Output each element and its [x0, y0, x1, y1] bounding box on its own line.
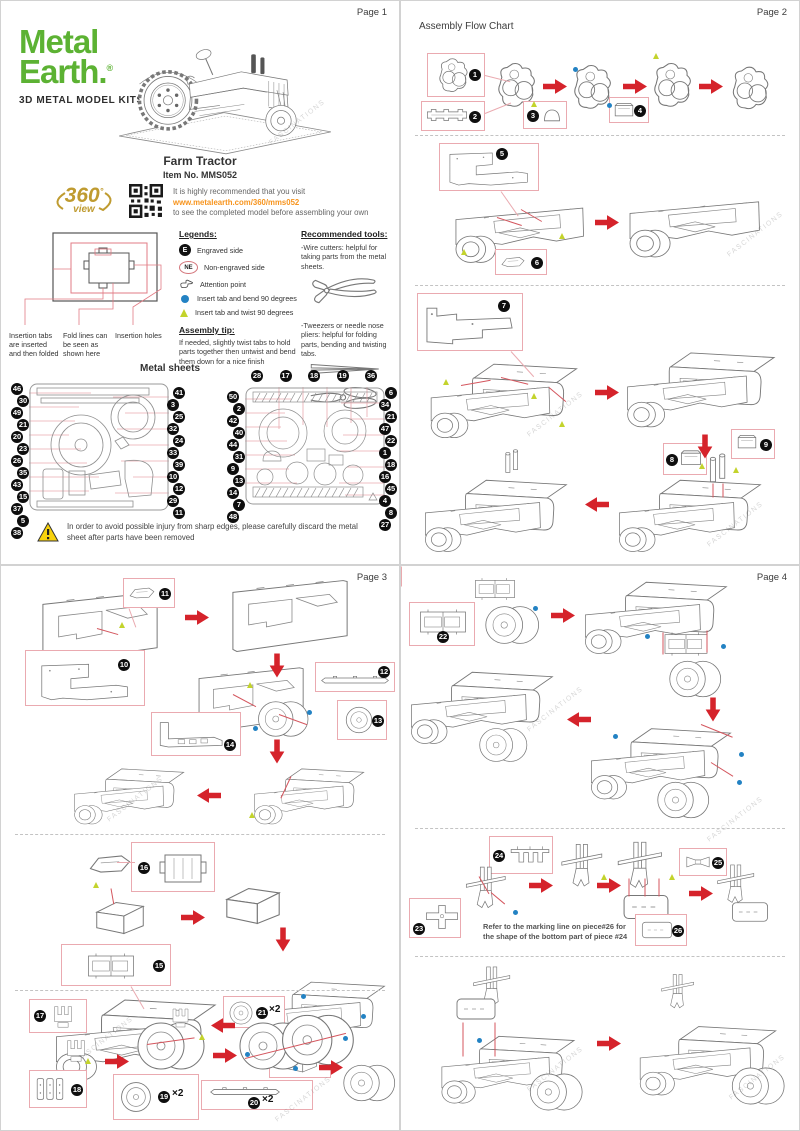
- step-badge-19: 19: [158, 1091, 170, 1103]
- assembly-tip-text: If needed, slightly twist tabs to hold p…: [179, 338, 297, 366]
- twist-marker: [559, 233, 565, 239]
- legend-bend-label: Insert tab and bend 90 degrees: [197, 294, 297, 303]
- arrow-left: [567, 712, 591, 727]
- part-box-3: 3: [523, 101, 567, 129]
- bend-marker: [253, 726, 258, 731]
- product-name: Farm Tractor: [1, 154, 399, 168]
- step-badge-23: 23: [413, 923, 425, 935]
- page-number-label: Page 3: [357, 572, 387, 583]
- bend-marker: [343, 1036, 348, 1041]
- assembly-14-result: [55, 762, 205, 828]
- part-11-wedge: [128, 584, 156, 602]
- part-box-12: 12: [315, 662, 395, 692]
- part-number-badge: 32: [167, 423, 179, 435]
- bend-marker: [573, 67, 578, 72]
- arrow-right: [551, 608, 575, 623]
- arrow-left: [585, 497, 609, 512]
- part-number-badge: 27: [379, 519, 391, 531]
- item-number: Item No. MMS052: [1, 170, 399, 180]
- part-16-seatback: [156, 848, 210, 888]
- part-number-badge: 28: [251, 370, 263, 382]
- assembly-step4: [649, 61, 695, 111]
- times-two: ×2: [172, 1088, 183, 1099]
- part-13-disc: [344, 705, 374, 735]
- page-number-label: Page 2: [757, 7, 787, 18]
- legend-non-engraved: NE Non-engraved side: [179, 261, 297, 274]
- part-number-badge: 36: [365, 370, 377, 382]
- steering-installed: [649, 972, 705, 1018]
- twist-marker: [249, 812, 255, 818]
- bend-marker: [361, 1014, 366, 1019]
- page-3: Page 3 11 10 12 13: [0, 565, 400, 1131]
- part-number-badge: 42: [227, 415, 239, 427]
- part-number-badge: 17: [280, 370, 292, 382]
- bend-marker: [293, 1066, 298, 1071]
- assembly-result-4: [421, 471, 573, 557]
- exhaust-pipes-installed: [503, 449, 521, 475]
- insert-line: [707, 631, 708, 653]
- step-badge-2: 2: [469, 111, 481, 123]
- part-number-badge: 40: [233, 427, 245, 439]
- bend-marker: [307, 710, 312, 715]
- arrow-down: [276, 928, 291, 952]
- arrow-right: [543, 79, 567, 94]
- row-divider: [415, 828, 785, 829]
- arrow-right: [595, 215, 619, 230]
- part-box-11: 11: [123, 578, 175, 608]
- twist-marker: [247, 682, 253, 688]
- seat-complete: [217, 882, 289, 930]
- step-badge-10: 10: [118, 659, 130, 671]
- twist-marker: [531, 101, 537, 107]
- twist-marker: [699, 463, 705, 469]
- part-number-badge: 43: [11, 479, 23, 491]
- front-wheels-installed-left: [479, 724, 529, 766]
- step-badge-11: 11: [159, 588, 171, 600]
- step-badge-4: 4: [634, 105, 646, 117]
- part-number-badge: 25: [173, 411, 185, 423]
- visit-line1: It is highly recommended that you visit: [173, 187, 395, 198]
- sheet1-left-badges: 4630492120232635431537538: [11, 383, 23, 513]
- step-badge-22: 22: [437, 631, 449, 643]
- legend-non-engraved-label: Non-engraved side: [204, 263, 265, 272]
- legend-bend: Insert tab and bend 90 degrees: [179, 294, 297, 303]
- arrow-down: [270, 654, 285, 678]
- part-number-badge: 33: [167, 447, 179, 459]
- warning-triangle-icon: [37, 522, 59, 542]
- part-14-duct: [157, 717, 227, 751]
- front-wheels-complete: [343, 1060, 397, 1106]
- part-number-badge: 19: [337, 370, 349, 382]
- row-divider: [415, 285, 785, 286]
- insertion-label-1: Insertion tabs are inserted and then fol…: [9, 331, 59, 358]
- part-box-22: 22: [409, 602, 475, 646]
- part-number-badge: 22: [385, 435, 397, 447]
- part-number-badge: 38: [11, 527, 23, 539]
- step-badge-7: 7: [498, 300, 510, 312]
- axle-cylinder: [257, 698, 311, 740]
- page-1: Page 1 Metal Earth.® 3D METAL MODEL KITS: [0, 0, 400, 565]
- part-number-badge: 29: [167, 495, 179, 507]
- part-number-badge: 24: [173, 435, 185, 447]
- step-badge-3: 3: [527, 110, 539, 122]
- arrow-right: [181, 910, 205, 925]
- part-number-badge: 15: [17, 491, 29, 503]
- part-17-fork: [50, 1003, 84, 1031]
- assembly-7: [419, 355, 591, 443]
- legend-engraved-label: Engraved side: [197, 246, 243, 255]
- visit-url: www.metalearth.com/360/mms052: [173, 198, 395, 209]
- part-box-16: 16: [131, 842, 215, 892]
- twist-triangle-icon: [180, 309, 188, 317]
- sheet1-right-badges: 413253224333910122911: [173, 387, 185, 509]
- part-number-badge: 13: [233, 475, 245, 487]
- metal-sheet-2: [245, 387, 385, 505]
- bend-marker: [645, 634, 650, 639]
- step-badge-25: 25: [712, 857, 724, 869]
- front-wheels-final-left: [529, 1070, 585, 1114]
- assembly-result-2: [625, 191, 767, 261]
- part-box-13: 13: [337, 700, 387, 740]
- attention-hand-icon: [179, 279, 194, 289]
- bend-marker: [737, 780, 742, 785]
- step-badge-14: 14: [224, 739, 236, 751]
- row-divider: [415, 135, 785, 136]
- twist-marker: [85, 1058, 91, 1064]
- insert-line: [723, 484, 724, 498]
- insertion-diagram: [9, 229, 167, 327]
- arrow-right: [597, 1036, 621, 1051]
- bend-marker: [721, 644, 726, 649]
- part-number-badge: 45: [385, 483, 397, 495]
- insert-line: [401, 567, 402, 587]
- arrow-left: [197, 788, 221, 803]
- wire-cutters-icon: [309, 274, 381, 310]
- part-number-badge: 35: [17, 467, 29, 479]
- 360-view-badge: 360° view: [49, 185, 119, 215]
- instruction-manual-sheet: Page 1 Metal Earth.® 3D METAL MODEL KITS: [0, 0, 800, 1131]
- seat-plate: [87, 848, 133, 880]
- part-box-19: 19 ×2: [113, 1074, 199, 1120]
- part-box-10: 10: [25, 650, 145, 706]
- part-number-badge: 26: [11, 455, 23, 467]
- part-number-badge: 8: [385, 507, 397, 519]
- twist-marker: [559, 421, 565, 427]
- twist-marker: [653, 53, 659, 59]
- part-box-17: 17: [29, 999, 87, 1033]
- part-number-badge: 21: [385, 411, 397, 423]
- part-number-badge: 2: [233, 403, 245, 415]
- twist-marker: [461, 249, 467, 255]
- step-badge-9: 9: [760, 439, 772, 451]
- part-number-badge: 44: [227, 439, 239, 451]
- warning-text: In order to avoid possible injury from s…: [67, 522, 377, 543]
- twist-marker: [119, 622, 125, 628]
- part-number-badge: 6: [385, 387, 397, 399]
- part-number-badge: 18: [308, 370, 320, 382]
- legend-attention-label: Attention point: [200, 280, 246, 289]
- leader-line: [117, 862, 135, 863]
- part-number-badge: 16: [379, 471, 391, 483]
- part-box-18: 18: [29, 1070, 87, 1108]
- steering-base: [719, 900, 781, 924]
- part-number-badge: 39: [173, 459, 185, 471]
- insert-line: [495, 1023, 496, 1057]
- arrow-right: [689, 886, 713, 901]
- arrow-right: [623, 79, 647, 94]
- engine-complete: [727, 65, 773, 113]
- arrow-right: [595, 385, 619, 400]
- part-number-badge: 3: [167, 399, 179, 411]
- part-number-badge: 41: [173, 387, 185, 399]
- part-number-badge: 18: [385, 459, 397, 471]
- part-box-14: 14: [151, 712, 241, 756]
- arrow-right: [105, 1054, 129, 1069]
- row-divider: [15, 990, 385, 991]
- 360-swoosh: [49, 185, 119, 219]
- part-box-9: 9: [731, 429, 775, 459]
- page-number-label: Page 1: [357, 7, 387, 18]
- part-box-5: 5: [439, 143, 539, 191]
- legends-title: Legends:: [179, 229, 297, 239]
- step-badge-15: 15: [153, 960, 165, 972]
- bend-marker: [607, 103, 612, 108]
- bend-marker: [245, 1052, 250, 1057]
- part-19-disc: [119, 1080, 153, 1114]
- step-badge-20: 20: [248, 1097, 260, 1109]
- bend-marker: [301, 994, 306, 999]
- flow-chart-title: Assembly Flow Chart: [419, 21, 513, 32]
- part-number-badge: 23: [17, 443, 29, 455]
- sharp-edges-warning: In order to avoid possible injury from s…: [37, 522, 377, 543]
- engraved-icon: E: [179, 244, 191, 256]
- arrow-right: [699, 79, 723, 94]
- arrow-right: [213, 1048, 237, 1063]
- bend-dot-icon: [181, 295, 189, 303]
- note-line-1: Refer to the marking line on piece#26 fo…: [483, 922, 641, 932]
- legend-twist-label: Insert tab and twist 90 degrees: [195, 308, 293, 317]
- step-badge-16: 16: [138, 862, 150, 874]
- assembly-tip-title: Assembly tip:: [179, 325, 297, 335]
- assembly-result-3: [623, 341, 781, 435]
- fork-on-hub: [169, 1006, 199, 1030]
- part-number-badge: 34: [379, 399, 391, 411]
- part-25-h: [684, 853, 712, 871]
- bend-marker: [613, 734, 618, 739]
- page-4: Page 4 22 FASCINATIONS FASCINATIONS: [400, 565, 800, 1131]
- tractor-illustration: [113, 35, 337, 155]
- insert-line: [659, 879, 660, 897]
- part-box-15: 15: [61, 944, 171, 986]
- legend-twist: Insert tab and twist 90 degrees: [179, 308, 297, 317]
- front-wheel-attach: [669, 656, 723, 702]
- row-divider: [15, 834, 385, 835]
- qr-code: [129, 184, 163, 218]
- tool-wire-cutters-text: -Wire cutters: helpful for taking parts …: [301, 243, 395, 271]
- twist-marker: [199, 1034, 205, 1040]
- arrow-down: [698, 435, 713, 459]
- part-6-wedge: [500, 253, 526, 271]
- part-4-box: [613, 101, 635, 119]
- row-divider: [415, 956, 785, 957]
- twist-marker: [669, 874, 675, 880]
- legend-attention: Attention point: [179, 279, 297, 289]
- twist-marker: [601, 874, 607, 880]
- part-number-badge: 10: [167, 471, 179, 483]
- insertion-label-3: Insertion holes: [115, 331, 167, 340]
- step-badge-5: 5: [496, 148, 508, 160]
- front-wheels-under-body: [657, 778, 711, 822]
- assembly-14-result-src: [235, 762, 385, 828]
- part-number-badge: 4: [379, 495, 391, 507]
- twist-marker: [733, 467, 739, 473]
- non-engraved-icon: NE: [179, 261, 198, 274]
- part-15-plate: [68, 951, 154, 981]
- part-number-badge: 50: [227, 391, 239, 403]
- arrow-right: [319, 1060, 343, 1075]
- part-box-26: 26: [635, 914, 687, 946]
- sheet2-left-badges: 5024240443191314748: [227, 391, 239, 503]
- part-3-dome: [542, 107, 562, 123]
- part-box-6: 6: [495, 249, 547, 275]
- fork-assembly: [63, 1036, 97, 1066]
- step-badge-12: 12: [378, 666, 390, 678]
- sheet2-right-badges: 63421472211816454827: [385, 387, 397, 511]
- bend-marker: [477, 1038, 482, 1043]
- part-number-badge: 31: [233, 451, 245, 463]
- registered-mark: ®: [107, 63, 113, 73]
- part-number-badge: 46: [11, 383, 23, 395]
- insertion-label-2: Fold lines can be seen as shown here: [63, 331, 111, 358]
- part-number-badge: 11: [173, 507, 185, 519]
- bend-marker: [513, 910, 518, 915]
- sheet2-top-badges: 2817181936: [251, 370, 377, 382]
- part-number-badge: 1: [379, 447, 391, 459]
- visit-line2: to see the completed model before assemb…: [173, 208, 395, 219]
- assembly-tip: Assembly tip: If needed, slightly twist …: [179, 325, 297, 366]
- arrow-left: [211, 1018, 235, 1033]
- twist-marker: [531, 393, 537, 399]
- twist-marker: [443, 379, 449, 385]
- seat-assembly: [89, 896, 151, 940]
- step-badge-1: 1: [469, 69, 481, 81]
- arrow-right: [185, 610, 209, 625]
- step-badge-21: 21: [256, 1007, 268, 1019]
- part-number-badge: 21: [17, 419, 29, 431]
- arrow-down: [270, 740, 285, 764]
- insert-line: [463, 1023, 464, 1057]
- part-number-badge: 49: [11, 407, 23, 419]
- plate-result: [227, 578, 355, 656]
- times-two: ×2: [269, 1004, 280, 1015]
- part-number-badge: 7: [233, 499, 245, 511]
- part-box-7: 7: [417, 293, 523, 351]
- insert-line: [663, 633, 664, 655]
- insert-line: [713, 484, 714, 498]
- step-badge-26: 26: [672, 925, 684, 937]
- step-badge-17: 17: [34, 1010, 46, 1022]
- step-badge-8: 8: [666, 454, 678, 466]
- insert-line: [645, 879, 646, 897]
- part-2-rack: [425, 106, 469, 124]
- step-badge-6: 6: [531, 257, 543, 269]
- insert-line: [629, 879, 630, 897]
- part-26-plate: [640, 919, 674, 941]
- page-2: Page 2 Assembly Flow Chart 1 2 3 4: [400, 0, 800, 565]
- part-box-4: 4: [609, 97, 649, 123]
- step-badge-13: 13: [372, 715, 384, 727]
- part-number-badge: 9: [227, 463, 239, 475]
- axle-plate-below: [654, 630, 718, 658]
- bend-marker: [739, 752, 744, 757]
- axle-plate-tilted: [465, 576, 525, 602]
- part-number-badge: 5: [17, 515, 29, 527]
- part-number-badge: 14: [227, 487, 239, 499]
- part-number-badge: 30: [17, 395, 29, 407]
- part-18-rects: [34, 1075, 66, 1103]
- page-number-label: Page 4: [757, 572, 787, 583]
- arrow-right: [529, 878, 553, 893]
- part-box-1: 1: [427, 53, 485, 97]
- part-number-badge: 20: [11, 431, 23, 443]
- legends: Legends: E Engraved side NE Non-engraved…: [179, 229, 297, 366]
- bend-marker: [533, 606, 538, 611]
- part-number-badge: 12: [173, 483, 185, 495]
- metal-sheet-1: [29, 383, 169, 511]
- legend-engraved: E Engraved side: [179, 244, 297, 256]
- tools-title: Recommended tools:: [301, 229, 395, 239]
- part-number-badge: 37: [11, 503, 23, 515]
- floor-plate-drop: [441, 996, 511, 1022]
- part-number-badge: 48: [227, 511, 239, 523]
- note-line-2: the shape of the bottom part of piece #2…: [483, 932, 641, 942]
- arrow-right: [597, 878, 621, 893]
- visit-recommendation: It is highly recommended that you visit …: [173, 187, 395, 219]
- piece-26-note: Refer to the marking line on piece#26 fo…: [483, 922, 641, 942]
- part-box-2: 2: [421, 101, 485, 131]
- times-two: ×2: [262, 1094, 273, 1105]
- part-5-plates: [444, 150, 534, 188]
- part-number-badge: 47: [379, 423, 391, 435]
- step-badge-24: 24: [493, 850, 505, 862]
- arrow-down: [706, 698, 721, 722]
- twist-marker: [93, 882, 99, 888]
- step-badge-18: 18: [71, 1084, 83, 1096]
- part-9-box: [736, 433, 758, 451]
- tool-tweezers-text: -Tweezers or needle nose pliers: helpful…: [301, 321, 395, 358]
